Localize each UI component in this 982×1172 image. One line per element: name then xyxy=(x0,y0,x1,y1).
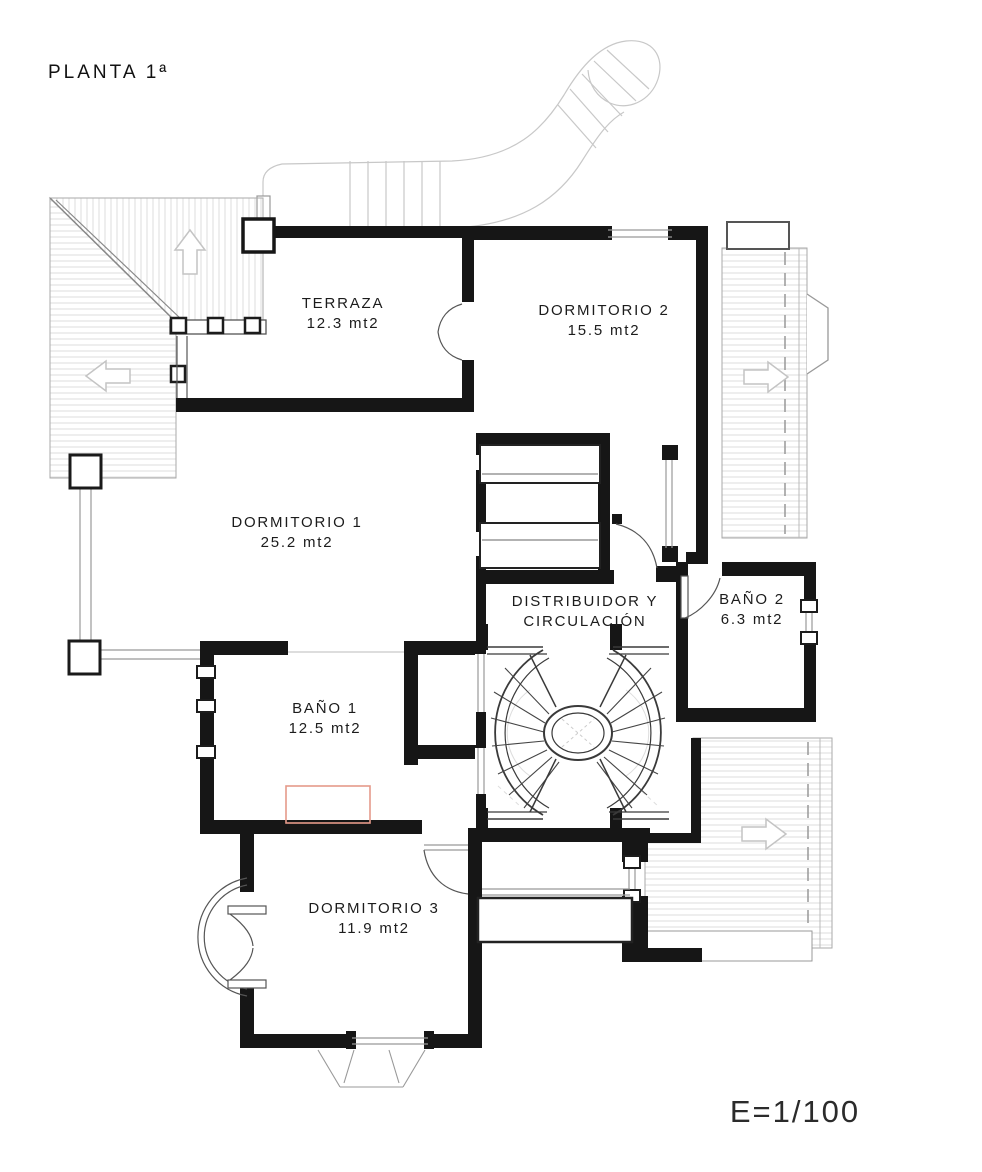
room-label-dormitorio-2: DORMITORIO 2 15.5 mt2 xyxy=(504,301,704,341)
room-label-dormitorio-1: DORMITORIO 1 25.2 mt2 xyxy=(197,513,397,553)
room-label-terraza: TERRAZA 12.3 mt2 xyxy=(263,294,423,334)
curved-exterior-stair xyxy=(257,41,660,228)
scale-label: E=1/100 xyxy=(700,1094,890,1130)
room-area: 25.2 mt2 xyxy=(197,533,397,553)
wardrobe xyxy=(478,898,632,942)
floor-plan-canvas: PLANTA 1ª TERRAZA 12.3 mt2 DORMITORIO 2 … xyxy=(0,0,982,1172)
bay-door-leaf xyxy=(228,906,266,914)
roof-bottom-right xyxy=(644,738,832,961)
room-name: DISTRIBUIDOR Y xyxy=(512,593,659,610)
room-area: 12.3 mt2 xyxy=(263,314,423,334)
room-label-bano-1: BAÑO 1 12.5 mt2 xyxy=(245,699,405,739)
roof-right xyxy=(722,222,828,538)
room-name: DORMITORIO 3 xyxy=(308,900,439,917)
bedroom2-door xyxy=(616,524,657,568)
roof-top-left xyxy=(50,198,266,478)
terrace-post xyxy=(243,219,274,252)
room-label-distribuidor: DISTRIBUIDOR Y CIRCULACIÓN xyxy=(485,592,685,632)
room-name: BAÑO 1 xyxy=(292,700,358,717)
room-area: 6.3 mt2 xyxy=(672,610,832,630)
bay-outer-arc xyxy=(198,878,247,996)
stair-eye-outer xyxy=(544,706,612,760)
plan-title: PLANTA 1ª xyxy=(48,62,169,84)
bathtub-fixture xyxy=(286,786,370,823)
bay-double-door xyxy=(230,914,253,946)
room-name: DORMITORIO 1 xyxy=(231,514,362,531)
terrace-double-door xyxy=(438,304,462,332)
entry-steps xyxy=(318,1050,425,1087)
chimney xyxy=(727,222,789,249)
room-area: 11.9 mt2 xyxy=(274,919,474,939)
room-label-bano-2: BAÑO 2 6.3 mt2 xyxy=(672,590,832,630)
floor-plan-drawing xyxy=(0,0,982,1172)
room-name-line2: CIRCULACIÓN xyxy=(485,612,685,632)
room-name: DORMITORIO 2 xyxy=(538,302,669,319)
room-name: BAÑO 2 xyxy=(719,591,785,608)
room-name: TERRAZA xyxy=(302,295,385,312)
dormer xyxy=(807,294,828,374)
bay-door-leaf-2 xyxy=(228,980,266,988)
spiral-staircase xyxy=(487,647,669,819)
room-label-dormitorio-3: DORMITORIO 3 11.9 mt2 xyxy=(274,899,474,939)
room-area: 15.5 mt2 xyxy=(504,321,704,341)
bedroom3-door xyxy=(424,850,468,894)
room-area: 12.5 mt2 xyxy=(245,719,405,739)
